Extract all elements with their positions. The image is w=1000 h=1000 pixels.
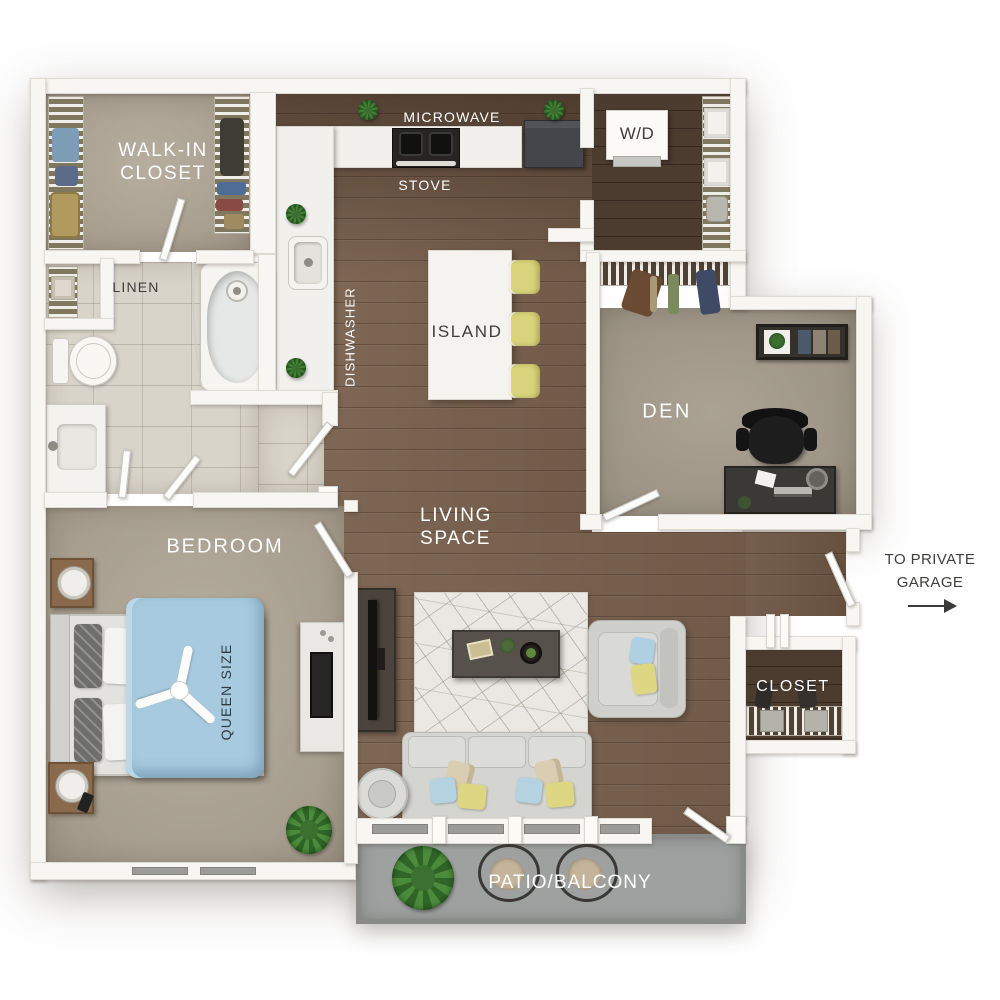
wall-hall-stub [548,228,594,242]
wall-bedroom-top-right [193,492,338,508]
bedroom-window-1 [132,867,188,875]
counter-plant-1 [358,100,378,120]
wall-tub-bottom [190,390,338,405]
patio-mullion-1 [432,816,446,844]
sofa-back-cushion-2 [468,736,526,768]
wall-kitchen-left [250,92,276,254]
wall-bottom-bedroom [30,862,356,880]
refrigerator [524,120,584,168]
armchair-pillow-yellow [630,663,657,696]
wall-top [30,78,746,94]
sofa-pillow-yellow-2 [545,781,575,808]
wall-garage-upper [846,528,860,552]
towel-stack-2 [704,158,730,186]
patio-window-3 [524,824,580,834]
island-stool-2 [508,312,540,346]
wall-walkin-bottom-right [196,250,254,264]
office-chair-arm-left [736,428,749,451]
walkin-closet-label: WALK-INCLOSET [118,139,208,185]
patio-window-2 [448,824,504,834]
desk-lamp [806,468,828,490]
wall-linen-bottom [44,318,114,330]
bed-pillow-dark-1 [74,624,102,688]
bedroom-tv [310,652,333,718]
living-space-label: LIVINGSPACE [420,504,492,550]
armchair-pillow-blue [628,636,655,665]
side-table-legs [368,780,396,808]
wall-den-left [586,252,600,520]
bedroom-plant [286,806,332,854]
garage-hall-floor [746,532,846,616]
stove-burner-right [429,132,453,156]
garage-arrow-head [944,599,957,613]
desk-keyboard [774,487,812,494]
armchair-back [660,628,678,708]
folded-item-blue [217,182,246,195]
desk-plant [738,496,751,509]
wall-den-bottom-right [658,514,872,530]
bookshelf-books-2 [813,330,826,354]
toilet-tank [52,338,69,384]
closet-label: CLOSET [756,678,830,696]
wall-left [30,78,46,880]
wall-bath-kitchen [258,254,276,392]
stove-label: STOVE [398,177,451,193]
sofa-pillow-yellow-1 [457,783,487,810]
patio-mullion-2 [508,816,522,844]
vanity-sink [57,424,97,470]
wall-living-right [730,616,746,822]
wall-den-bottom-left [580,514,602,530]
wall-walkin-bottom-left [44,250,140,264]
stove-handle [396,161,456,166]
shoes-pair [224,214,244,229]
console-knob-2 [328,636,334,642]
washer-dryer-door [613,156,661,167]
patio-window-1 [372,824,428,834]
queen-size-label: QUEEN SIZE [218,644,234,741]
island-label: ISLAND [431,322,502,342]
wall-bedroom-top-left [44,492,107,508]
den-hanging-tie-green [668,274,679,314]
stove-burner-left [399,132,423,156]
laundry-bag [706,196,728,222]
patio-door-post [726,816,746,844]
wall-den-right [856,296,872,528]
counter-plant-2 [544,100,564,120]
closet-door-post-1 [766,614,775,648]
counter-plant-4 [286,358,306,378]
closet-box-1 [760,710,784,732]
garage-note: TO PRIVATEGARAGE [876,548,984,594]
wall-closet-top [730,636,856,650]
wall-den-closet-top [580,250,746,262]
wall-hall-door-upper [322,392,338,426]
patio-balcony-label: PATIO/BALCONY [488,872,651,894]
bed-pillow-dark-2 [74,698,102,762]
wall-laundry-right [730,78,746,310]
bookshelf-books-1 [798,330,811,354]
folded-item-red [216,199,243,211]
hanging-clothes-dark [220,118,244,176]
linen-label: LINEN [112,279,159,295]
bowl-greens [526,648,536,658]
washer-dryer-label: W/D [620,124,655,144]
microwave-label: MICROWAVE [403,109,500,125]
island-stool-3 [508,364,540,398]
closet-door-post-2 [780,614,789,648]
closet-box-2 [804,710,828,732]
sofa-pillow-blue-1 [429,777,457,805]
bookshelf-plant [769,333,785,349]
counter-plant-3 [286,204,306,224]
sofa-pillow-blue-2 [515,777,544,805]
hanging-clothes-blue [52,128,79,162]
hanging-garment-gold [50,192,80,238]
bedroom-window-2 [200,867,256,875]
headboard [50,614,70,776]
den-hanging-strap [650,276,657,312]
linen-basket [51,276,75,300]
office-chair-arm-right [804,428,817,451]
wall-laundry-left-upper [580,88,594,148]
floor-plan: WALK-INCLOSET LINEN MICROWAVE STOVE DISH… [0,0,1000,1000]
bedroom-label: BEDROOM [166,536,283,559]
dishwasher-label: DISHWASHER [343,287,358,387]
bathtub-drain-center [233,287,241,295]
hanging-clothes-navy [55,166,78,186]
wall-bedroom-right-upper [344,500,358,512]
garage-arrow-icon [908,605,946,607]
wall-closet-right [842,636,856,754]
nightstand-lamp-top [58,567,90,599]
television [368,600,377,720]
console-knob-1 [320,630,326,636]
patio-mullion-3 [584,816,598,844]
vanity-faucet [48,441,58,451]
kitchen-faucet [304,258,313,267]
bookshelf-books-3 [828,330,840,354]
island-stool-1 [508,260,540,294]
wall-closet-bottom [730,740,856,754]
coffee-table-plant [500,638,515,653]
ceiling-fan-hub [171,682,188,699]
bed-duvet [126,598,264,778]
den-label: DEN [642,401,691,424]
patio-window-4 [600,824,640,834]
towel-stack-1 [704,108,730,138]
office-chair-seat [748,416,804,464]
toilet-seat [76,343,111,379]
wall-den-top-right [730,296,872,310]
tv-stand [377,648,385,670]
patio-plant [392,846,454,910]
